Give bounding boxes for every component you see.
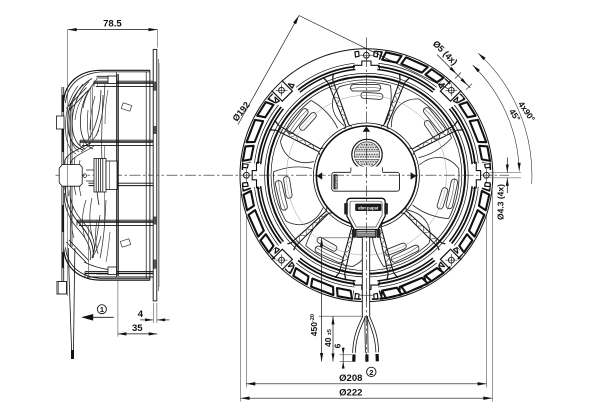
svg-text:Ø208: Ø208 — [339, 373, 362, 384]
svg-text:ebmpapst: ebmpapst — [358, 205, 379, 210]
svg-text:6: 6 — [332, 343, 342, 348]
svg-text:1: 1 — [100, 305, 104, 314]
svg-text:35: 35 — [132, 323, 143, 334]
svg-text:78.5: 78.5 — [103, 18, 122, 29]
svg-text:Ø222: Ø222 — [339, 387, 362, 398]
svg-text:4: 4 — [138, 309, 144, 320]
svg-text:Ø4.3 (4x): Ø4.3 (4x) — [496, 184, 506, 220]
svg-text:ebmpapst: ebmpapst — [334, 175, 338, 189]
svg-text:2: 2 — [369, 368, 373, 377]
